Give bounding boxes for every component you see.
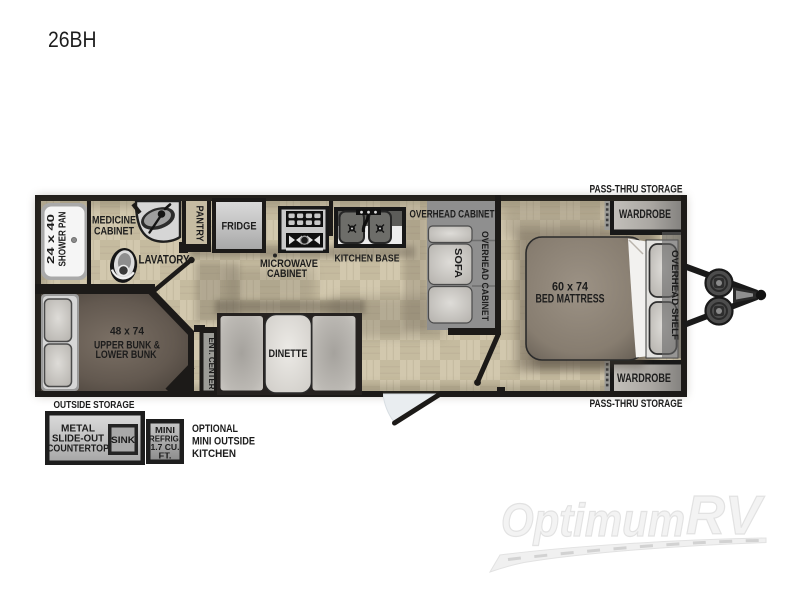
svg-text:Optimum: Optimum — [501, 494, 685, 546]
svg-text:CABINET: CABINET — [267, 268, 307, 280]
svg-text:LAVATORY: LAVATORY — [139, 253, 190, 267]
svg-text:COUNTERTOP: COUNTERTOP — [47, 444, 109, 455]
svg-text:DINETTE: DINETTE — [269, 348, 308, 360]
svg-text:OPTIONAL: OPTIONAL — [192, 423, 238, 435]
svg-text:KITCHEN BASE: KITCHEN BASE — [335, 253, 400, 265]
svg-text:PASS-THRU STORAGE: PASS-THRU STORAGE — [590, 184, 683, 196]
svg-text:KITCHEN: KITCHEN — [192, 448, 236, 460]
svg-text:PASS-THRU STORAGE: PASS-THRU STORAGE — [590, 398, 683, 410]
svg-text:OUTSIDE STORAGE: OUTSIDE STORAGE — [54, 399, 135, 411]
svg-text:MINI OUTSIDE: MINI OUTSIDE — [192, 436, 255, 448]
svg-text:SINK: SINK — [111, 435, 135, 446]
svg-text:SHOWER PAN: SHOWER PAN — [57, 212, 69, 267]
svg-text:ENT. CENTER: ENT. CENTER — [207, 338, 217, 390]
svg-text:26BH: 26BH — [48, 27, 97, 52]
svg-text:OVERHEAD CABINET: OVERHEAD CABINET — [480, 231, 490, 321]
svg-text:WARDROBE: WARDROBE — [617, 371, 671, 385]
svg-text:BED MATTRESS: BED MATTRESS — [536, 292, 605, 306]
svg-text:PANTRY: PANTRY — [194, 206, 205, 242]
svg-text:FT.: FT. — [159, 451, 172, 461]
svg-text:WARDROBE: WARDROBE — [619, 207, 671, 221]
svg-text:FRIDGE: FRIDGE — [222, 221, 257, 233]
svg-text:LOWER BUNK: LOWER BUNK — [96, 349, 157, 361]
svg-text:48 x 74: 48 x 74 — [110, 326, 145, 338]
svg-text:CABINET: CABINET — [94, 226, 134, 238]
svg-text:OVERHEAD CABINET: OVERHEAD CABINET — [410, 209, 495, 221]
svg-text:RV: RV — [686, 484, 765, 546]
svg-text:24 x 40: 24 x 40 — [45, 214, 57, 264]
svg-text:OVERHEAD SHELF: OVERHEAD SHELF — [669, 250, 680, 340]
svg-text:SOFA: SOFA — [452, 248, 464, 278]
